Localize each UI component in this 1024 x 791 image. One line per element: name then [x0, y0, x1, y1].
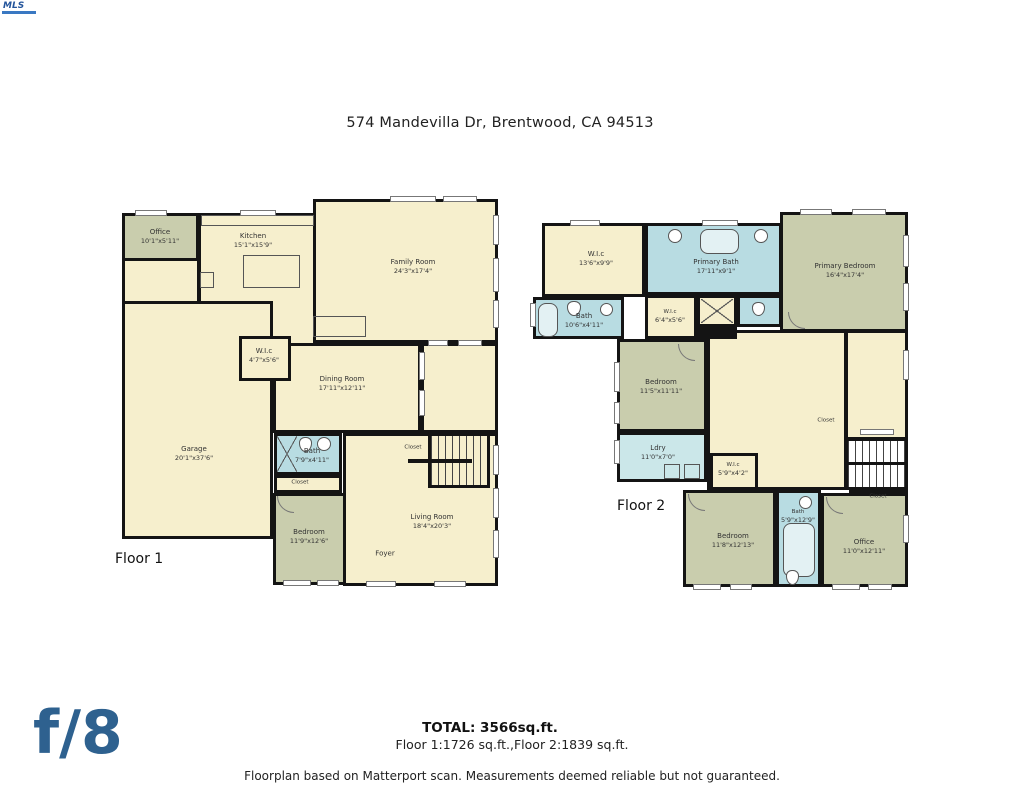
sofa-icon [313, 316, 366, 337]
window-marker [493, 445, 499, 475]
label-wic-f1: W.I.c4'7"x5'6" [249, 347, 279, 365]
window-marker [614, 440, 620, 464]
window-marker [493, 488, 499, 518]
label-primary-bath-f2: Primary Bath17'11"x9'1" [693, 258, 739, 276]
label-bedroom-mid-f2: Bedroom11'5"x11'11" [640, 378, 682, 396]
floorplan-page: MLS 574 Mandevilla Dr, Brentwood, CA 945… [0, 0, 1024, 791]
window-marker [730, 584, 752, 590]
window-marker [493, 215, 499, 245]
window-marker [852, 209, 886, 215]
closet-cross-icon [701, 299, 733, 323]
window-marker [428, 340, 448, 346]
label-bath-f1: Bath7'9"x4'11" [295, 447, 329, 465]
room-entry-hall-f1 [421, 343, 498, 433]
floor1-title: Floor 1 [115, 551, 163, 567]
label-closet-stairs-f1: Closet [404, 444, 421, 451]
window-marker [530, 303, 536, 327]
label-closet-f1: Closet [291, 479, 308, 486]
label-bedroom-front-f2: Bedroom11'8"x12'13" [712, 532, 754, 550]
label-bedroom-f1: Bedroom11'9"x12'6" [290, 528, 328, 546]
stove-icon [200, 272, 214, 288]
label-dining-f1: Dining Room17'11"x12'11" [319, 375, 365, 393]
window-marker [443, 196, 477, 202]
window-marker [693, 584, 721, 590]
window-marker [860, 429, 894, 435]
stairs-landing-wall-f1 [408, 459, 472, 463]
floor2-title: Floor 2 [617, 498, 665, 514]
label-primary-bedroom-f2: Primary Bedroom16'4"x17'4" [815, 262, 876, 280]
wall-block-f2 [697, 327, 737, 339]
kitchen-island-icon [243, 255, 300, 288]
dryer-icon [684, 464, 700, 479]
window-marker [366, 581, 396, 587]
label-laundry-f2: Ldry11'0"x7'0" [641, 444, 675, 462]
bathtub-icon [700, 229, 739, 254]
window-marker [493, 258, 499, 292]
washer-icon [664, 464, 680, 479]
window-marker [419, 390, 425, 416]
window-marker [135, 210, 167, 216]
label-wic-small-f2: W.I.c6'4"x5'6" [655, 309, 685, 325]
sink-icon [754, 229, 768, 243]
label-bath-hall-f2: Bath10'6"x4'11" [565, 312, 603, 330]
f8-logo: f/8 [33, 698, 123, 768]
disclaimer-text: Floorplan based on Matterport scan. Meas… [0, 769, 1024, 783]
sink-icon [799, 496, 812, 509]
label-foyer-f1: Foyer [375, 549, 394, 558]
label-wic-primary-f2: W.I.c13'6"x9'9" [579, 250, 613, 268]
window-marker [493, 530, 499, 558]
window-marker [240, 210, 276, 216]
listing-service-logo: MLS [3, 1, 36, 15]
label-office-f1: Office10'1"x5'11" [141, 228, 179, 246]
window-marker [458, 340, 482, 346]
label-family-f1: Family Room24'3"x17'4" [391, 258, 436, 276]
label-kitchen-f1: Kitchen15'1"x15'9" [234, 232, 272, 250]
window-marker [903, 515, 909, 543]
label-office-f2: Office11'0"x12'11" [843, 538, 885, 556]
label-garage-f1: Garage20'1"x37'6" [175, 445, 213, 463]
window-marker [903, 283, 909, 311]
window-marker [903, 235, 909, 267]
sink-icon [668, 229, 682, 243]
label-closet-landing-f2: Closet [817, 417, 834, 424]
label-living-f1: Living Room18'4"x20'3" [411, 513, 454, 531]
window-marker [614, 362, 620, 392]
room-landing-f2 [845, 330, 908, 440]
window-marker [493, 300, 499, 328]
bathtub-icon [783, 523, 815, 577]
label-wic-hall-f2: W.I.c5'9"x4'2" [718, 462, 748, 478]
window-marker [800, 209, 832, 215]
label-closet-stairs-f2: Closet [869, 493, 886, 500]
window-marker [434, 581, 466, 587]
window-marker [390, 196, 436, 202]
kitchen-counter-icon [201, 215, 314, 226]
window-marker [903, 350, 909, 380]
window-marker [317, 580, 339, 586]
total-sqft: TOTAL: 3566sq.ft. [0, 720, 980, 736]
window-marker [614, 402, 620, 424]
room-hallway-f1 [122, 258, 200, 304]
label-bath-front-f2: Bath5'9"x12'9" [781, 509, 815, 525]
window-marker [283, 580, 311, 586]
window-marker [868, 584, 892, 590]
floor-sqft-breakdown: Floor 1:1726 sq.ft.,Floor 2:1839 sq.ft. [0, 737, 1024, 752]
window-marker [832, 584, 860, 590]
logo-underline [2, 11, 36, 14]
page-title: 574 Mandevilla Dr, Brentwood, CA 94513 [0, 115, 1000, 131]
stairs-landing-wall-f2 [848, 462, 905, 465]
window-marker [570, 220, 600, 226]
logo-text: MLS [3, 1, 24, 11]
bathtub-icon [538, 303, 558, 337]
window-marker [419, 352, 425, 380]
window-marker [702, 220, 738, 226]
